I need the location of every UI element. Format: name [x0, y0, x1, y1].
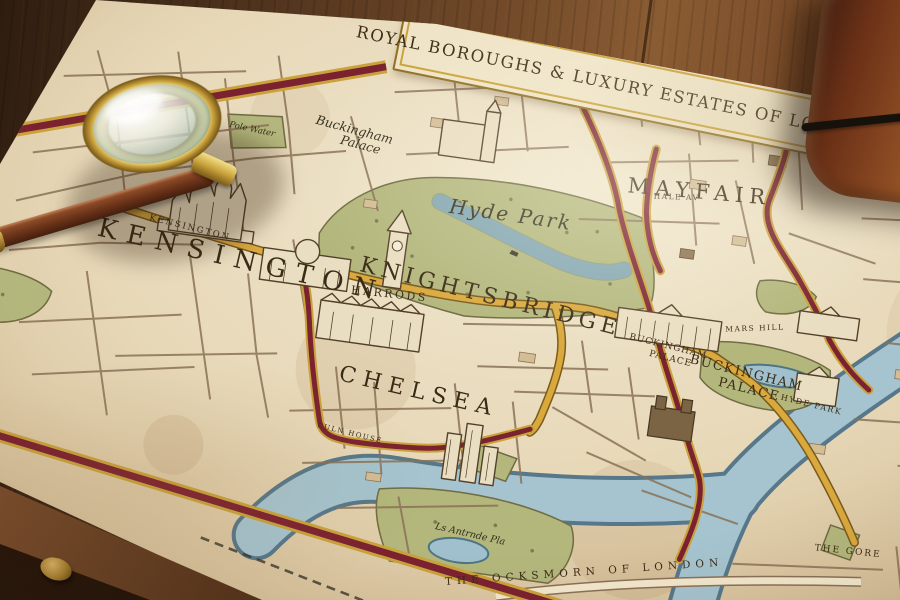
label-hale-av: HALE AV: [654, 192, 700, 203]
chelsea-towers: [441, 421, 501, 486]
label-mars-hill: MARS HILL: [725, 323, 785, 334]
photo-scene: MAYFAIR KENSINGTON KNIGHTSBRIDGE CHELSEA…: [0, 0, 900, 600]
left-edge-park: [0, 262, 54, 330]
journal-elastic-band: [801, 104, 900, 132]
parliament-tower: [438, 93, 502, 162]
